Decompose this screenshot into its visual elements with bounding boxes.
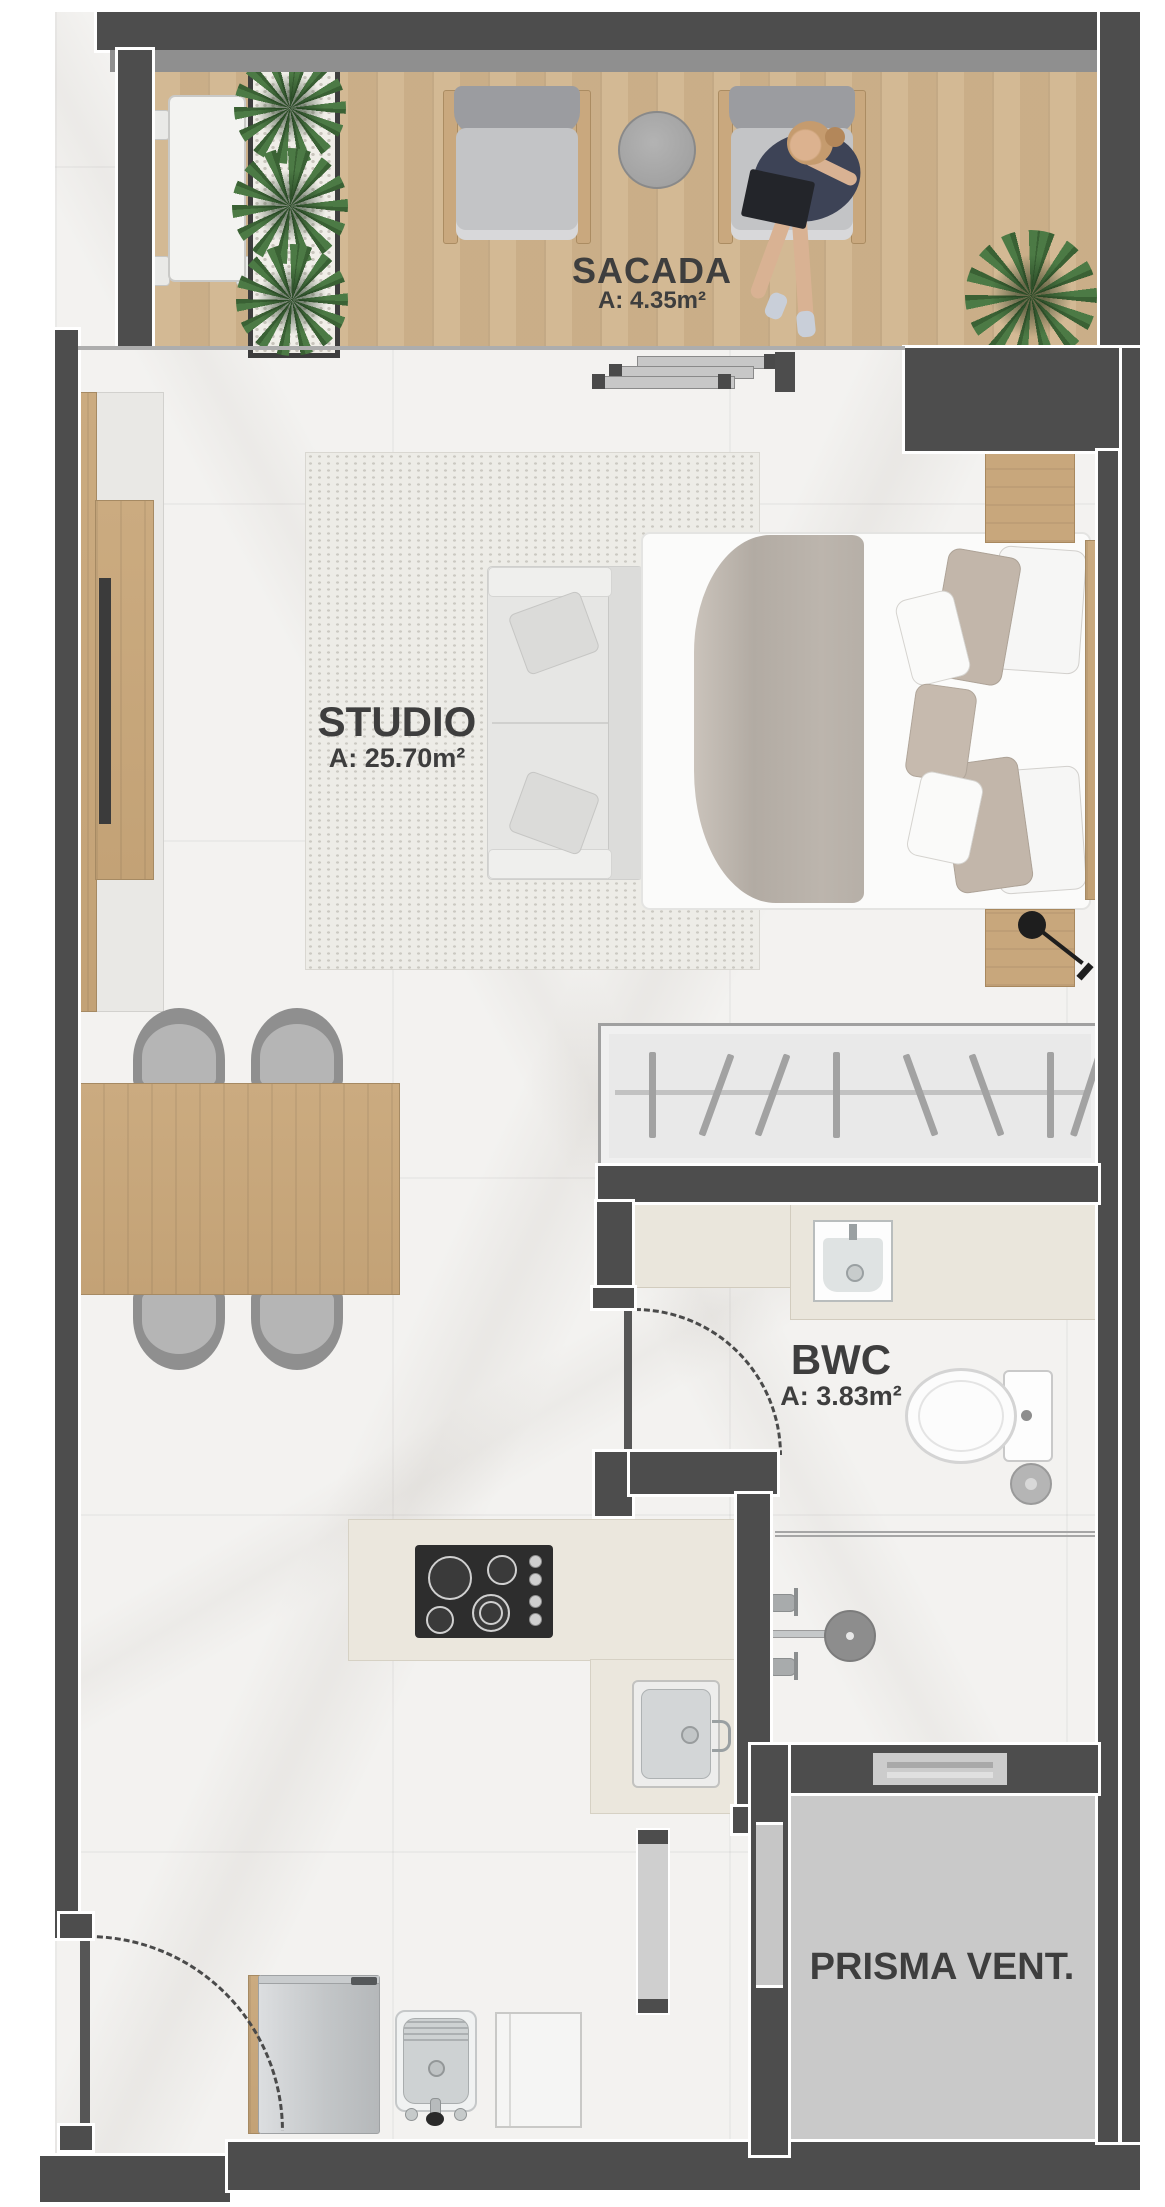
toilet-seat [918, 1380, 1004, 1452]
sofa-cushion [507, 590, 600, 676]
wall-right-outer [1122, 348, 1140, 2142]
prisma-side-window [756, 1822, 783, 1988]
nightstand [985, 451, 1075, 543]
room-name: PRISMA VENT. [810, 1948, 1075, 1988]
window-sill [887, 1772, 993, 1778]
wardrobe [598, 1023, 1102, 1169]
balcony-wall-right [1100, 12, 1140, 348]
sofa-cushion [507, 770, 600, 856]
drain [428, 2060, 445, 2077]
wall-block-top-right [905, 348, 1140, 451]
room-name: BWC [780, 1338, 902, 1382]
armchair [443, 86, 591, 248]
burner [426, 1606, 454, 1634]
wall-bwc-shower-stub [630, 1452, 777, 1494]
burner [487, 1555, 517, 1585]
outer-wall-left [55, 330, 78, 1938]
faucet [712, 1720, 731, 1752]
sliding-door-panel [596, 376, 735, 389]
dining-table [78, 1083, 400, 1295]
person-with-laptop [725, 115, 905, 325]
shower-head [824, 1610, 876, 1662]
fridge-handle [351, 1977, 377, 1985]
drain-hole [1025, 1478, 1037, 1490]
shower-valve-handle [794, 1652, 798, 1680]
pillow [904, 682, 978, 784]
entry-door-jamb [60, 1914, 92, 1938]
plant [236, 244, 348, 356]
vanity-sink [813, 1220, 893, 1302]
cabinet-divider [509, 2014, 511, 2126]
hanger [833, 1052, 840, 1138]
shower-valve [772, 1658, 796, 1676]
person-hair-bun [825, 127, 845, 147]
balcony-chair [150, 256, 170, 286]
cooktop-knob [529, 1555, 542, 1568]
room-label-prisma: PRISMA VENT. [810, 1948, 1075, 1988]
potted-plant [965, 230, 1097, 362]
sofa [487, 566, 643, 880]
person-shoe [796, 310, 817, 338]
room-label-bwc: BWC A: 3.83m² [780, 1338, 902, 1410]
sofa-arm [488, 849, 612, 879]
partition-strip [638, 1830, 668, 2013]
drain [846, 1264, 864, 1282]
hanger [699, 1053, 735, 1136]
balcony-railing [110, 50, 1105, 72]
sofa-seam [492, 722, 608, 724]
sliding-door-cap [592, 374, 605, 389]
faucet-spout [426, 2112, 444, 2126]
toilet-bowl [905, 1368, 1017, 1464]
wall-right-inner [1098, 451, 1118, 2142]
drain [681, 1726, 699, 1744]
window-glass [887, 1762, 993, 1768]
room-area: A: 4.35m² [572, 289, 732, 314]
wardrobe-rail [615, 1090, 1085, 1095]
outer-wall-bottom [228, 2142, 1140, 2190]
wall-studio-bwc [598, 1166, 1098, 1202]
outer-wall-top [97, 12, 1140, 50]
sofa-back [608, 567, 642, 879]
hanger [903, 1053, 939, 1136]
cooktop-knob [529, 1573, 542, 1586]
sliding-door-post [775, 352, 795, 392]
bwc-door-leaf [624, 1308, 632, 1453]
cooktop-knob [529, 1595, 542, 1608]
faucet [849, 1224, 857, 1240]
cabinet [495, 2012, 582, 2128]
faucet-knob [405, 2108, 418, 2121]
flush-button [1021, 1410, 1032, 1421]
vanity-counter [632, 1202, 794, 1288]
table-lamp [1018, 911, 1046, 939]
faucet-knob [454, 2108, 467, 2121]
prisma-window [870, 1750, 1010, 1788]
person-shoe [763, 291, 789, 322]
hanger [1047, 1052, 1054, 1138]
burner [472, 1594, 510, 1632]
shower-valve [772, 1594, 796, 1612]
hanger [755, 1053, 791, 1136]
sliding-door-cap [718, 374, 731, 389]
burner [428, 1556, 472, 1600]
blanket [694, 535, 864, 903]
laundry-sink [395, 2010, 477, 2112]
round-side-table [618, 111, 696, 189]
room-name: SACADA [572, 252, 732, 289]
sink-basin [641, 1689, 711, 1779]
room-name: STUDIO [318, 700, 477, 744]
shower-arm [772, 1630, 832, 1638]
bwc-door-jamb [593, 1288, 634, 1308]
room-label-studio: STUDIO A: 25.70m² [318, 700, 477, 772]
shower-valve-handle [794, 1588, 798, 1616]
floor-plan: SACADA A: 4.35m² STUDIO A: 25.70m² [0, 0, 1165, 2207]
sliding-door-track [78, 346, 905, 350]
outer-wall-bottom-left [40, 2156, 230, 2202]
tv [99, 578, 111, 824]
cooktop [415, 1545, 553, 1638]
balcony-chair [150, 110, 170, 140]
floor-drain [1010, 1463, 1052, 1505]
sofa-arm [488, 567, 612, 597]
cooktop-knob [529, 1613, 542, 1626]
kitchen-sink [632, 1680, 720, 1788]
wall-bwc-left [597, 1202, 632, 1290]
room-area: A: 3.83m² [780, 1382, 902, 1410]
glass-partition [775, 1531, 1098, 1537]
hanger [969, 1053, 1005, 1136]
balcony-wall-left [118, 50, 152, 347]
room-label-sacada: SACADA A: 4.35m² [572, 252, 732, 314]
shower-head-center [846, 1632, 854, 1640]
room-area: A: 25.70m² [318, 744, 477, 772]
entry-door-jamb [60, 2126, 92, 2150]
wall-bwc-left-corner [595, 1452, 632, 1516]
hanger [649, 1052, 656, 1138]
